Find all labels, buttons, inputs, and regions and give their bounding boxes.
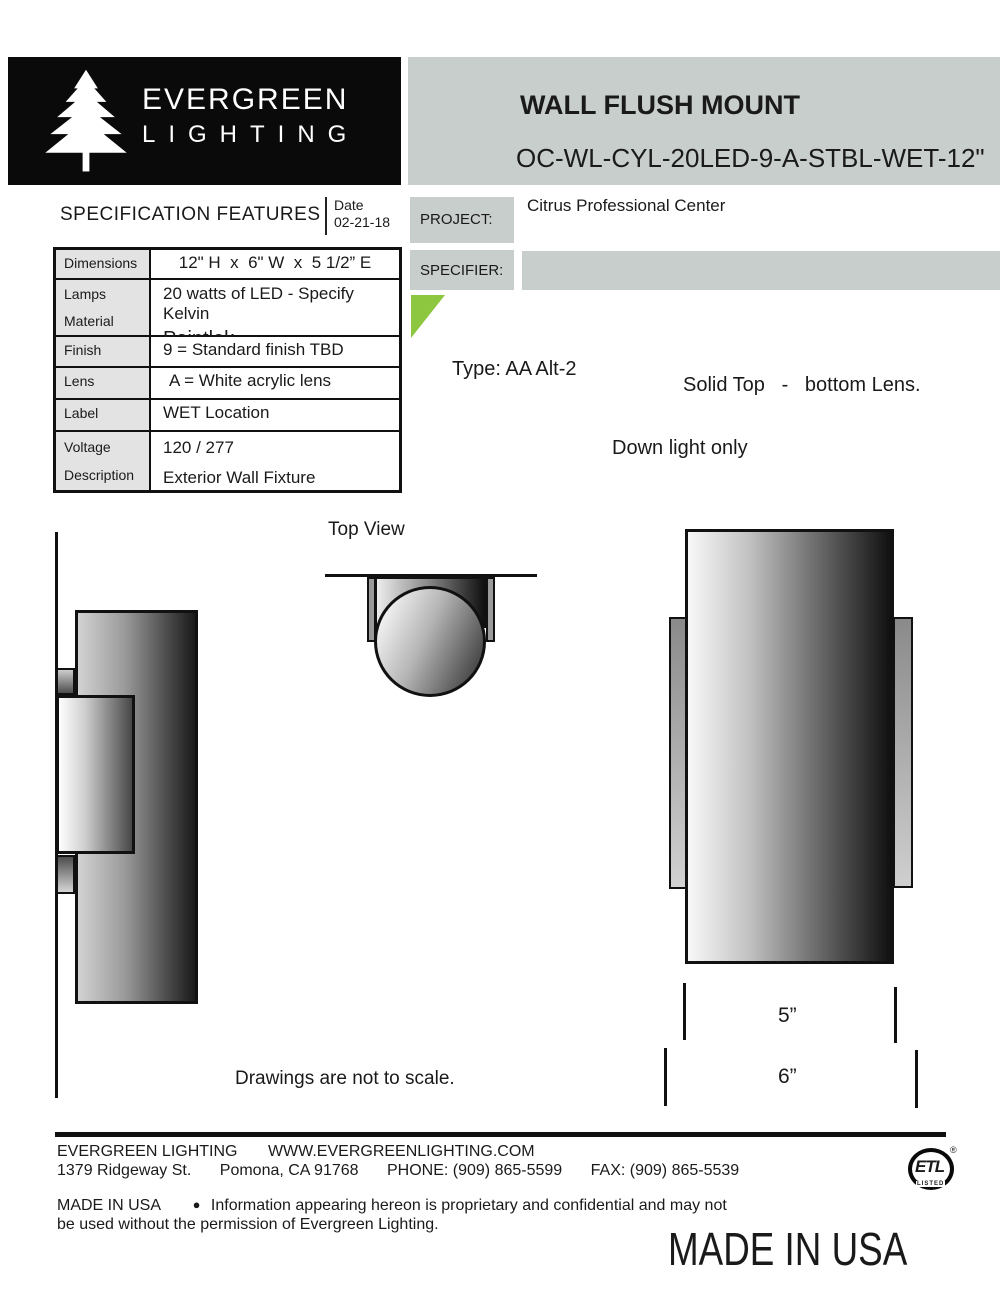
row-value: A = White acrylic lens: [151, 368, 399, 398]
material-label: Material: [64, 313, 149, 329]
front-view-right-bracket: [893, 617, 913, 888]
etl-listed-text: LISTED: [916, 1181, 945, 1187]
dimension-tick: [894, 987, 897, 1043]
description-label: Description: [64, 467, 149, 483]
lamps-value: 20 watts of LED - Specify Kelvin: [163, 284, 399, 324]
footer-company: EVERGREEN LIGHTING: [57, 1143, 237, 1160]
light-direction-note: Down light only: [612, 437, 748, 460]
row-label: Finish: [56, 337, 151, 366]
spec-table: Dimensions 12" H x 6" W x 5 1/2” E Lamps…: [53, 247, 402, 493]
etl-letters: ETL: [915, 1157, 944, 1177]
pine-tree-icon: [38, 68, 134, 174]
front-view-cylinder: [685, 529, 894, 964]
date-value: 02-21-18: [334, 214, 390, 230]
footer-notice-line2: be used without the permission of Evergr…: [57, 1216, 439, 1234]
width-dimension-label: 5”: [778, 1004, 797, 1028]
dimension-tick: [683, 983, 686, 1040]
footer-phone: PHONE: (909) 865-5599: [387, 1162, 562, 1179]
date-divider-line: [325, 197, 327, 235]
model-code: OC-WL-CYL-20LED-9-A-STBL-WET-12": [516, 143, 985, 174]
product-title: WALL FLUSH MOUNT: [520, 90, 800, 121]
made-in-usa-banner: MADE IN USA: [668, 1222, 907, 1276]
footer-city: Pomona, CA 91768: [220, 1162, 359, 1179]
specifier-label-box: SPECIFIER:: [410, 250, 514, 290]
project-label-box: PROJECT:: [410, 197, 514, 243]
footer-made-in: MADE IN USA: [57, 1197, 160, 1214]
brand-name-line2: LIGHTING: [142, 121, 359, 149]
side-view-lower-mount-tab: [56, 855, 75, 894]
table-row-dimensions: Dimensions 12" H x 6" W x 5 1/2” E: [56, 250, 399, 280]
scale-disclaimer: Drawings are not to scale.: [235, 1068, 455, 1090]
voltage-label: Voltage: [64, 439, 149, 455]
table-row-label: Label WET Location: [56, 400, 399, 432]
date-label: Date: [334, 197, 364, 213]
footer-address: 1379 Ridgeway St.: [57, 1162, 191, 1179]
brand-logo-box: EVERGREEN LIGHTING: [8, 57, 401, 185]
row-value: 20 watts of LED - Specify Kelvin Paintlo…: [151, 280, 399, 335]
top-view-label: Top View: [328, 519, 405, 541]
footer-fax: FAX: (909) 865-5539: [591, 1162, 740, 1179]
dimension-tick: [664, 1048, 667, 1106]
project-value: Citrus Professional Center: [527, 196, 725, 216]
footer-address-line: 1379 Ridgeway St. Pomona, CA 91768 PHONE…: [57, 1162, 739, 1180]
overall-dimension-label: 6”: [778, 1065, 797, 1089]
row-label: Dimensions: [56, 250, 151, 278]
top-view-cylinder-circle: [374, 586, 486, 697]
type-note: Type: AA Alt-2: [452, 358, 577, 381]
footer-notice-text1: Information appearing hereon is propriet…: [211, 1197, 727, 1214]
bullet-icon: ●: [193, 1197, 201, 1212]
row-value: 12" H x 6" W x 5 1/2” E: [151, 250, 399, 278]
row-label: Lamps Material: [56, 280, 151, 335]
lamps-label: Lamps: [64, 286, 149, 302]
spec-sheet-page: EVERGREEN LIGHTING WALL FLUSH MOUNT OC-W…: [0, 0, 1000, 1294]
table-row-lamps-material: Lamps Material 20 watts of LED - Specify…: [56, 280, 399, 337]
side-view-upper-mount-tab: [56, 668, 75, 695]
product-header-panel: WALL FLUSH MOUNT OC-WL-CYL-20LED-9-A-STB…: [408, 57, 1000, 185]
table-row-lens: Lens A = White acrylic lens: [56, 368, 399, 400]
row-label: Voltage Description: [56, 432, 151, 490]
specifier-label: SPECIFIER:: [420, 262, 503, 279]
side-view-backplate: [56, 695, 135, 854]
spec-features-heading: SPECIFICATION FEATURES: [60, 204, 321, 226]
dimension-tick: [915, 1050, 918, 1108]
table-row-voltage-description: Voltage Description 120 / 277 Exterior W…: [56, 432, 399, 490]
footer-website: WWW.EVERGREENLIGHTING.COM: [268, 1143, 535, 1160]
footer-divider-line: [55, 1132, 946, 1137]
row-value: 120 / 277 Exterior Wall Fixture: [151, 432, 399, 490]
etl-listed-icon: ETL LISTED ®: [908, 1148, 958, 1194]
row-label: Lens: [56, 368, 151, 398]
registered-trademark-icon: ®: [950, 1145, 957, 1155]
brand-name-line1: EVERGREEN: [142, 83, 348, 117]
row-value: 9 = Standard finish TBD: [151, 337, 399, 366]
top-view-right-bracket: [486, 577, 495, 642]
row-label: Label: [56, 400, 151, 430]
row-value: WET Location: [151, 400, 399, 430]
specifier-value-field: [522, 251, 1000, 290]
footer-notice-line1: MADE IN USA ● Information appearing here…: [57, 1197, 727, 1215]
footer-company-line: EVERGREEN LIGHTING WWW.EVERGREENLIGHTING…: [57, 1143, 535, 1161]
green-corner-triangle-icon: [411, 295, 445, 338]
table-row-finish: Finish 9 = Standard finish TBD: [56, 337, 399, 368]
project-label: PROJECT:: [420, 211, 493, 228]
lens-configuration-note: Solid Top - bottom Lens.: [683, 374, 921, 397]
description-value: Exterior Wall Fixture: [163, 468, 399, 488]
voltage-value: 120 / 277: [163, 438, 399, 458]
